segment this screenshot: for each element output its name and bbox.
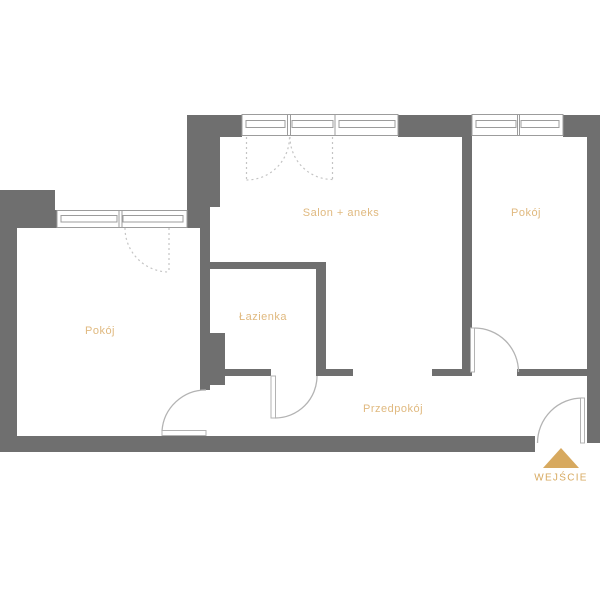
wall-corner-block [0, 190, 55, 212]
room-label-lazienka: Łazienka [239, 311, 287, 323]
room-label-pokoj-left: Pokój [85, 325, 115, 337]
wall-salon-left-thick [187, 115, 220, 207]
floor-plan-drawing [0, 0, 600, 600]
wall-hall-segment-c [517, 369, 587, 376]
wall-window-junction [187, 205, 210, 228]
wall-bathroom-pier [200, 333, 225, 385]
room-label-pokoj-right: Pokój [511, 207, 541, 219]
wall-hall-segment-a [316, 369, 353, 376]
room-label-przedpokoj: Przedpokój [363, 403, 423, 415]
wall-bathroom-bottom [210, 369, 271, 376]
dashed-swings [125, 137, 333, 272]
wall-bathroom-top [210, 262, 326, 269]
window-salon-balcony [242, 115, 335, 136]
window-salon [335, 115, 398, 136]
entrance-label: WEJŚCIE [534, 473, 588, 484]
door-pokoj-right [471, 328, 519, 372]
swing-pokoj-left-window [125, 228, 169, 272]
wall-bathroom-right [316, 262, 326, 376]
wall-bottom-exterior [0, 436, 535, 452]
entrance-arrow [543, 448, 579, 468]
room-label-salon: Salon + aneks [303, 207, 380, 219]
swing-balcony-right-leaf [290, 137, 333, 180]
floor-plan-canvas: Salon + aneks Pokój Łazienka Pokój Przed… [0, 0, 600, 600]
wall-top-segment-c [563, 115, 600, 137]
door-entrance [538, 398, 585, 443]
wall-top-segment-b [398, 115, 472, 137]
window-pokoj-right [472, 115, 563, 136]
wall-right-exterior [587, 137, 600, 443]
walls [0, 115, 600, 452]
door-lazienka [271, 376, 317, 418]
door-pokoj-left [162, 390, 206, 436]
swing-balcony-left-leaf [247, 137, 290, 180]
wall-left-exterior [0, 210, 17, 452]
doors [162, 328, 585, 443]
window-pokoj-left [57, 211, 187, 228]
